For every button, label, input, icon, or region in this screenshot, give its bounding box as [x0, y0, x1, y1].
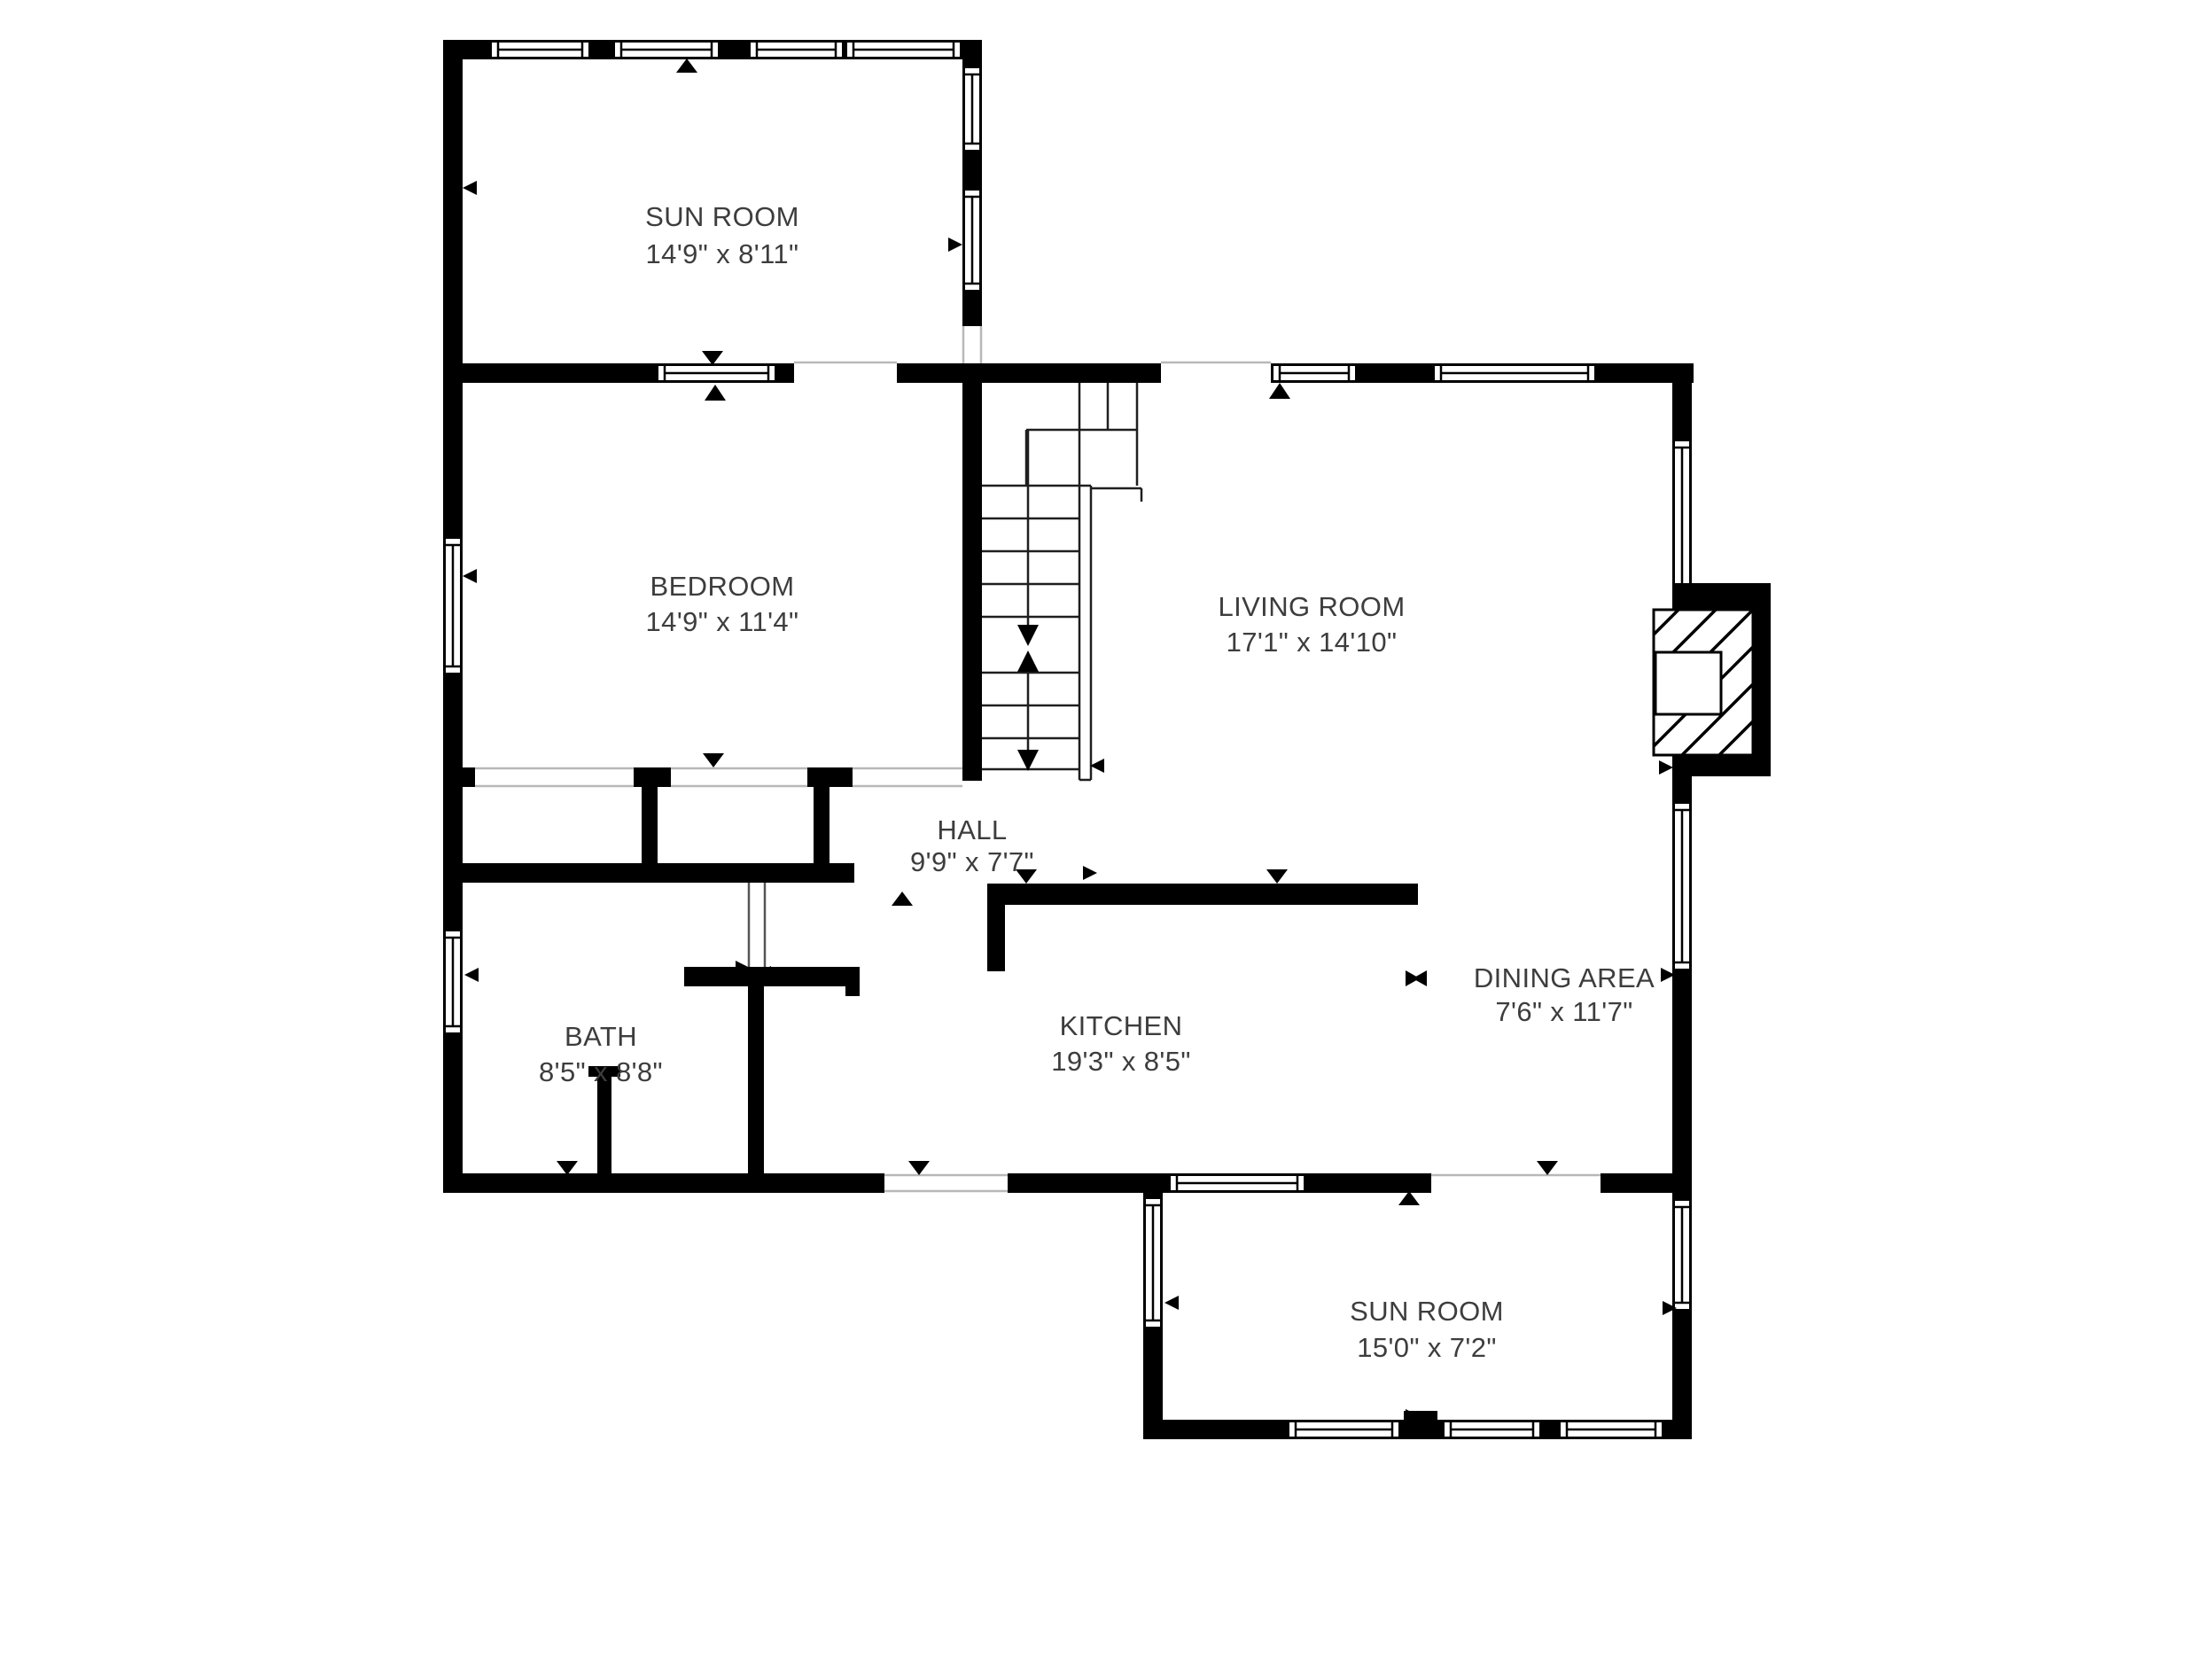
room-label-sun-room-top: SUN ROOM [645, 201, 799, 233]
direction-marker [948, 238, 962, 252]
wall-segment [443, 1173, 884, 1193]
room-dims-sun-room-top: 14'9" x 8'11" [646, 238, 799, 270]
firebox [1655, 652, 1721, 714]
wall-segment [634, 767, 671, 787]
room-dims-bedroom: 14'9" x 11'4" [646, 606, 799, 638]
direction-marker [908, 1161, 930, 1175]
wall-segment [807, 767, 853, 787]
wall-segment [642, 787, 658, 865]
wall-segment [962, 363, 982, 781]
wall-opening [1431, 1173, 1601, 1193]
direction-marker [1017, 750, 1039, 771]
room-dims-hall: 9'9" x 7'7" [910, 846, 1034, 878]
wall-segment [987, 884, 1418, 905]
wall-segment [684, 967, 860, 986]
floor-plan-canvas [0, 0, 2212, 1659]
direction-marker [1659, 760, 1673, 775]
room-dims-dining-area: 7'6" x 11'7" [1495, 996, 1632, 1028]
direction-marker [705, 385, 726, 401]
room-dims-sun-room-bottom: 15'0" x 7'2" [1357, 1332, 1497, 1364]
wall-segment [443, 863, 854, 883]
direction-marker [463, 181, 477, 195]
direction-marker [557, 1161, 578, 1175]
room-dims-bath: 8'5" x 8'8" [539, 1056, 663, 1088]
wall-segment [463, 767, 475, 787]
direction-marker [1398, 1191, 1420, 1205]
wall-segment [897, 363, 1161, 383]
room-label-sun-room-bottom: SUN ROOM [1350, 1296, 1504, 1328]
room-label-hall: HALL [937, 814, 1007, 846]
direction-marker [1017, 625, 1039, 646]
room-dims-living-room: 17'1" x 14'10" [1227, 627, 1398, 658]
direction-marker [1413, 970, 1427, 986]
direction-marker [892, 892, 913, 906]
direction-marker [1269, 383, 1290, 399]
wall-segment [814, 787, 829, 865]
direction-marker [1090, 759, 1104, 773]
direction-marker [1164, 1296, 1179, 1310]
wall-segment [987, 884, 1005, 971]
wall-segment [845, 986, 860, 996]
direction-marker [702, 351, 723, 365]
direction-marker [703, 753, 724, 767]
direction-marker [464, 968, 479, 982]
room-label-living-room: LIVING ROOM [1218, 591, 1405, 623]
room-label-kitchen: KITCHEN [1060, 1010, 1183, 1042]
direction-marker [1017, 650, 1039, 672]
room-label-dining-area: DINING AREA [1474, 962, 1655, 994]
direction-marker [1537, 1161, 1558, 1175]
direction-marker [676, 58, 697, 73]
room-label-bath: BATH [565, 1021, 637, 1053]
direction-marker [1083, 866, 1097, 880]
room-label-bedroom: BEDROOM [650, 571, 795, 603]
wall-segment [597, 1071, 611, 1193]
direction-marker [463, 569, 477, 583]
room-dims-kitchen: 19'3" x 8'5" [1051, 1046, 1191, 1078]
wall-segment [748, 986, 764, 1173]
direction-marker [1266, 869, 1288, 884]
